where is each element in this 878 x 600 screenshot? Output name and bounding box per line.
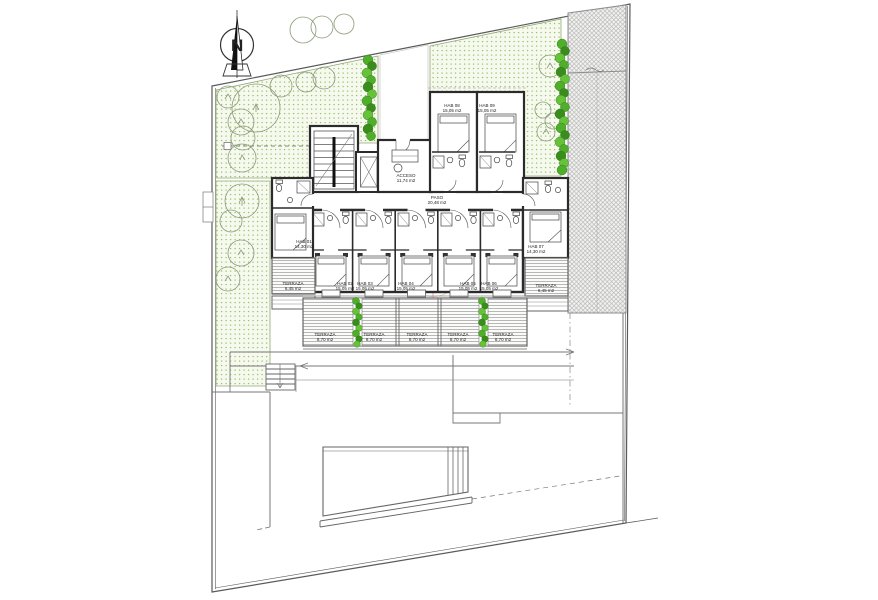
garden-lower-left [216,181,270,386]
label-terraza4-area: 8,70 m2 [450,337,467,342]
label-terraza5-area: 8,70 m2 [495,337,512,342]
label-terraza1-area: 8,70 m2 [317,337,334,342]
staircase [310,126,358,192]
label-acceso-area: 11,74 m2 [397,178,416,183]
label-hab07-area: 14,30 m2 [527,249,546,254]
label-terraza-left-area: 6,45 m2 [285,286,302,291]
corridor-paso [310,192,523,210]
north-label: N [231,36,243,55]
floorplan-canvas: habitaclia [0,0,878,600]
pool-lower-wall [320,497,472,527]
label-hab04-area: 15,05 m2 [397,286,416,291]
label-hab08-area: 15,05 m2 [443,108,462,113]
site-plan-drawing: habitaclia [0,0,878,600]
label-hab06-area: 15,05 m2 [480,286,499,291]
label-terraza-right-area: 6,45 m2 [538,288,555,293]
label-terraza3-area: 8,70 m2 [409,337,426,342]
rooms-main-row [310,208,523,292]
label-paso-area: 20,48 m2 [428,200,447,205]
outdoor-stairs [266,364,295,390]
label-terraza2-area: 8,70 m2 [366,337,383,342]
entrance-walkway [380,45,428,140]
label-hab01-area: 14,30 m2 [295,244,314,249]
hatched-area [568,5,626,406]
label-hab02-area: 15,05 m2 [336,286,355,291]
label-hab09-area: 15,05 m2 [478,108,497,113]
pool [320,447,472,527]
utility-box [203,192,213,222]
north-arrow: N [221,10,254,78]
acceso-room [378,138,432,192]
label-hab05-area: 15,05 m2 [459,286,478,291]
label-hab03-area: 15,05 m2 [356,286,375,291]
